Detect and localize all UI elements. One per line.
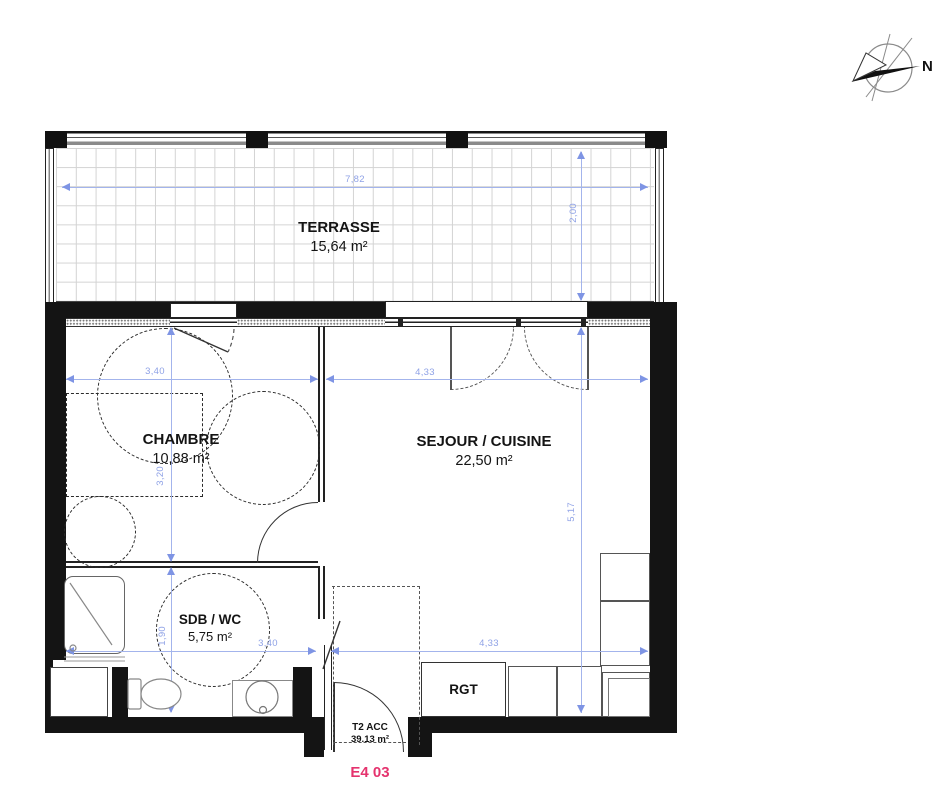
room-label-terrasse: TERRASSE 15,64 m² bbox=[254, 218, 424, 256]
room-label-chambre: CHAMBRE 10,88 m² bbox=[111, 430, 251, 468]
room-label-sejour: SEJOUR / CUISINE 22,50 m² bbox=[389, 432, 579, 470]
compass bbox=[851, 34, 920, 101]
room-name: CHAMBRE bbox=[111, 430, 251, 450]
room-area: 15,64 m² bbox=[254, 238, 424, 257]
unit-type-label: T2 ACC 39.13 m² bbox=[329, 721, 411, 746]
unit-total-area: 39.13 m² bbox=[329, 734, 411, 746]
washbasin bbox=[246, 681, 278, 713]
unit-code-label: E4 03 bbox=[329, 764, 411, 781]
room-area: 22,50 m² bbox=[389, 452, 579, 471]
shower-drain-icon bbox=[70, 645, 76, 651]
chambre-window-door-leaf bbox=[174, 328, 228, 352]
room-area: 10,88 m² bbox=[111, 450, 251, 469]
room-name: SDB / WC bbox=[145, 611, 275, 629]
lineart-overlay bbox=[0, 0, 947, 800]
room-name: TERRASSE bbox=[254, 218, 424, 238]
room-area: 5,75 m² bbox=[145, 629, 275, 646]
unit-type: T2 ACC bbox=[329, 721, 411, 734]
floor-plan: 7,82 2,00 3,40 4,33 3,20 1,90 5,17 3,40 … bbox=[0, 0, 947, 800]
room-label-rgt: RGT bbox=[421, 682, 506, 697]
toilet-tank bbox=[128, 679, 141, 709]
north-label: N bbox=[922, 58, 933, 75]
sdb-door-leaf bbox=[323, 621, 340, 669]
room-label-sdb: SDB / WC 5,75 m² bbox=[145, 611, 275, 645]
toilet-bowl bbox=[141, 679, 181, 709]
room-name: SEJOUR / CUISINE bbox=[389, 432, 579, 452]
chambre-window-door-swing bbox=[228, 329, 234, 352]
shower-diagonal bbox=[70, 583, 112, 645]
